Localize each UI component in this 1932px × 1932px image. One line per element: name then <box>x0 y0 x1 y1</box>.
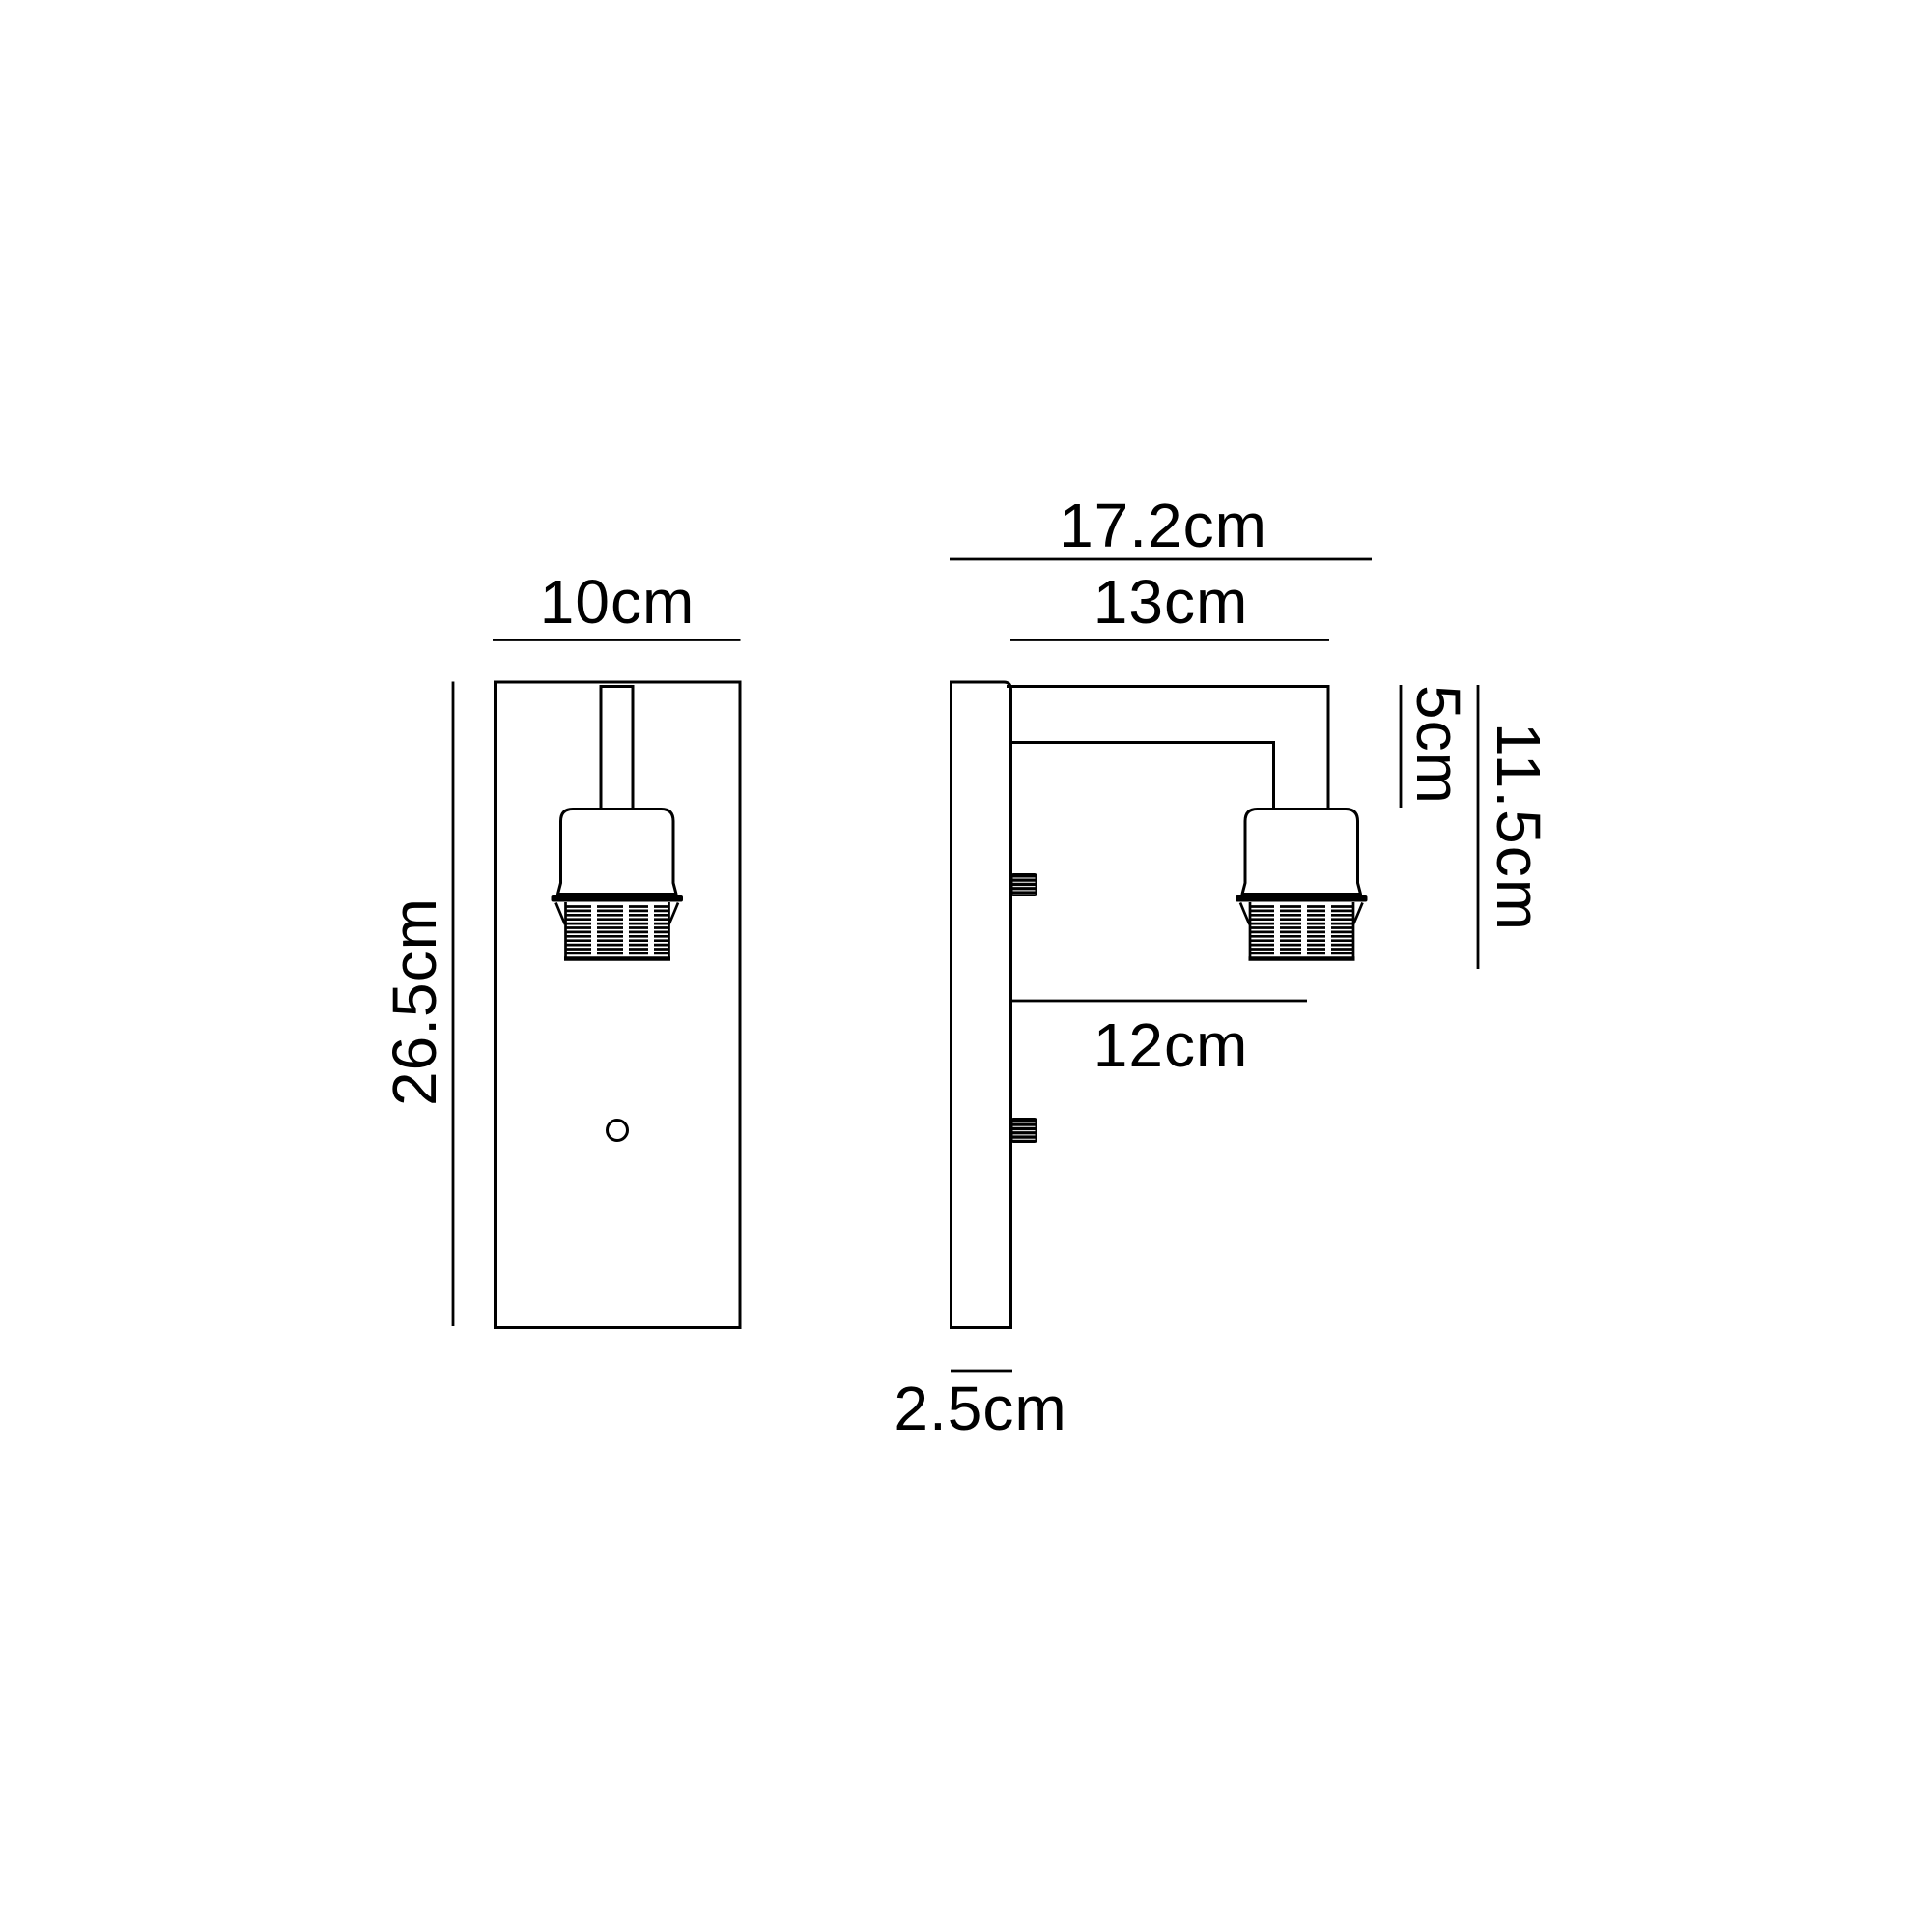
svg-text:5cm: 5cm <box>1404 685 1473 805</box>
svg-text:10cm: 10cm <box>540 567 696 637</box>
svg-text:17.2cm: 17.2cm <box>1059 491 1267 560</box>
svg-text:12cm: 12cm <box>1094 1010 1249 1080</box>
svg-text:2.5cm: 2.5cm <box>894 1374 1066 1443</box>
svg-text:13cm: 13cm <box>1094 567 1249 637</box>
svg-text:11.5cm: 11.5cm <box>1484 723 1553 932</box>
svg-text:26.5cm: 26.5cm <box>380 897 449 1106</box>
